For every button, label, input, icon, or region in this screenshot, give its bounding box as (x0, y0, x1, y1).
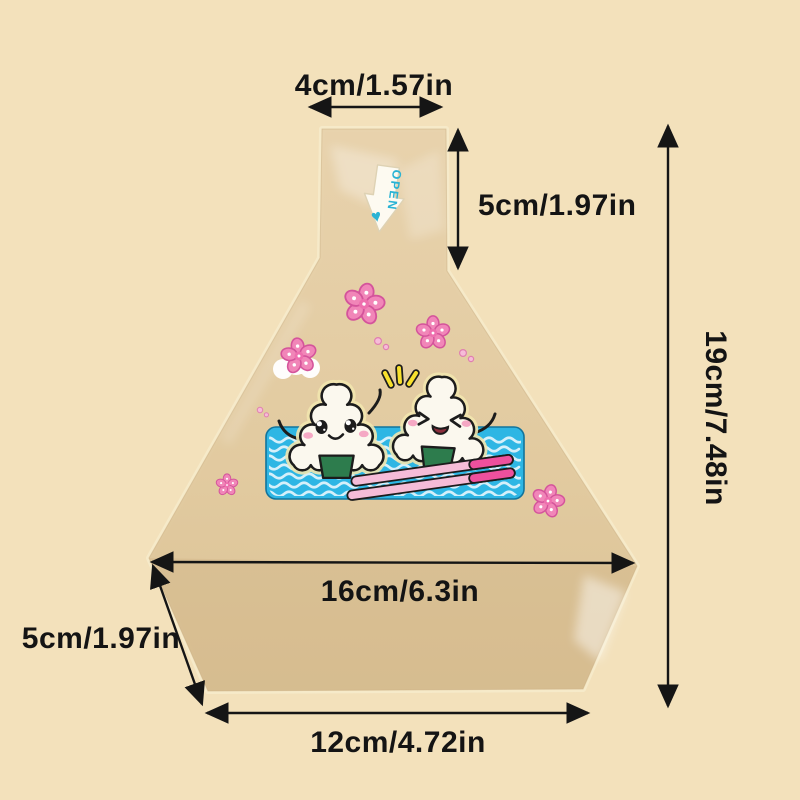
diagram-canvas: OPEN ♥ 4cm/1.57in 5cm/1.97in 19cm/7.48in… (0, 0, 800, 800)
dimension-top-width-label: 4cm/1.57in (295, 69, 453, 102)
dimension-side-edge-label: 5cm/1.97in (22, 622, 180, 655)
dimension-total-height-label: 19cm/7.48in (699, 330, 732, 506)
dimension-top-width: 4cm/1.57in (295, 69, 453, 107)
product-dimension-diagram: OPEN ♥ 4cm/1.57in 5cm/1.97in 19cm/7.48in… (0, 0, 800, 800)
dimension-max-width-label: 16cm/6.3in (321, 575, 479, 608)
dimension-total-height: 19cm/7.48in (668, 126, 732, 706)
dimension-bottom-width-label: 12cm/4.72in (310, 726, 486, 759)
dimension-neck-height: 5cm/1.97in (458, 130, 636, 268)
dimension-bottom-width: 12cm/4.72in (207, 713, 588, 759)
dimension-neck-height-label: 5cm/1.97in (478, 189, 636, 222)
